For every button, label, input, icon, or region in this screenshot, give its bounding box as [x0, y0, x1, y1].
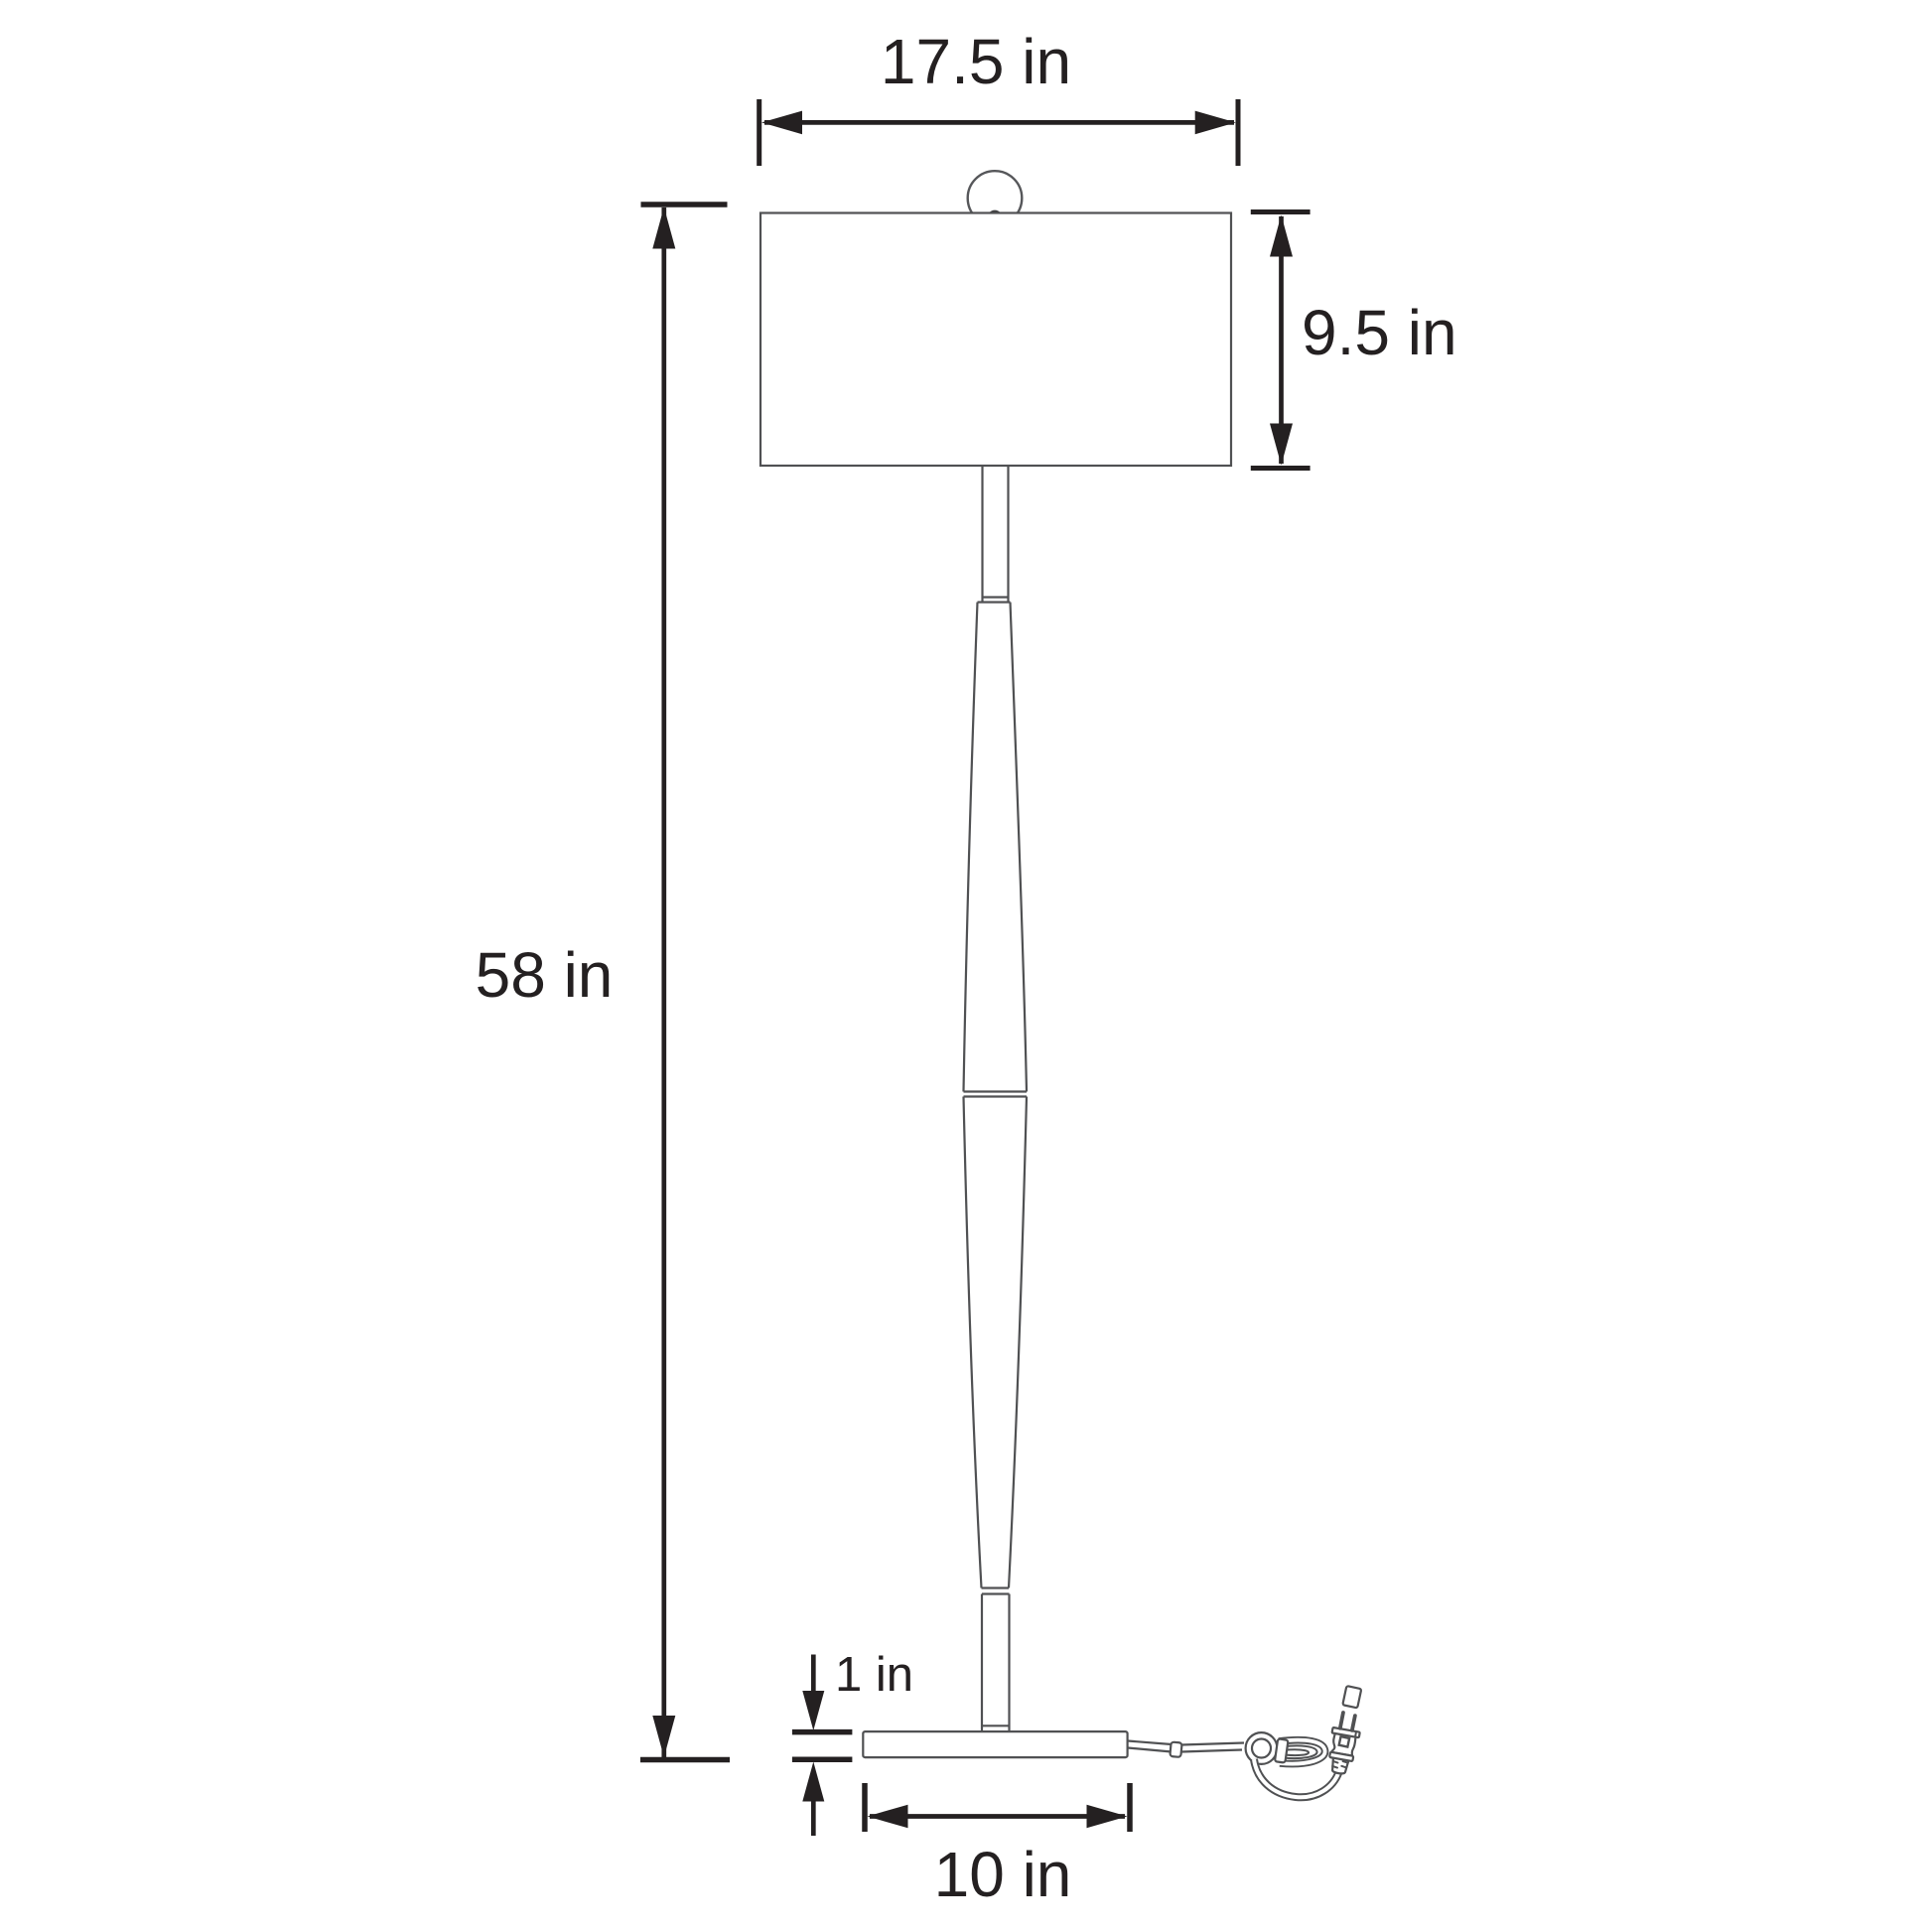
svg-text:17.5 in: 17.5 in: [881, 26, 1071, 97]
svg-text:10 in: 10 in: [934, 1839, 1072, 1910]
svg-text:1 in: 1 in: [835, 1648, 913, 1702]
svg-text:58 in: 58 in: [476, 939, 614, 1011]
svg-text:9.5 in: 9.5 in: [1302, 297, 1457, 368]
